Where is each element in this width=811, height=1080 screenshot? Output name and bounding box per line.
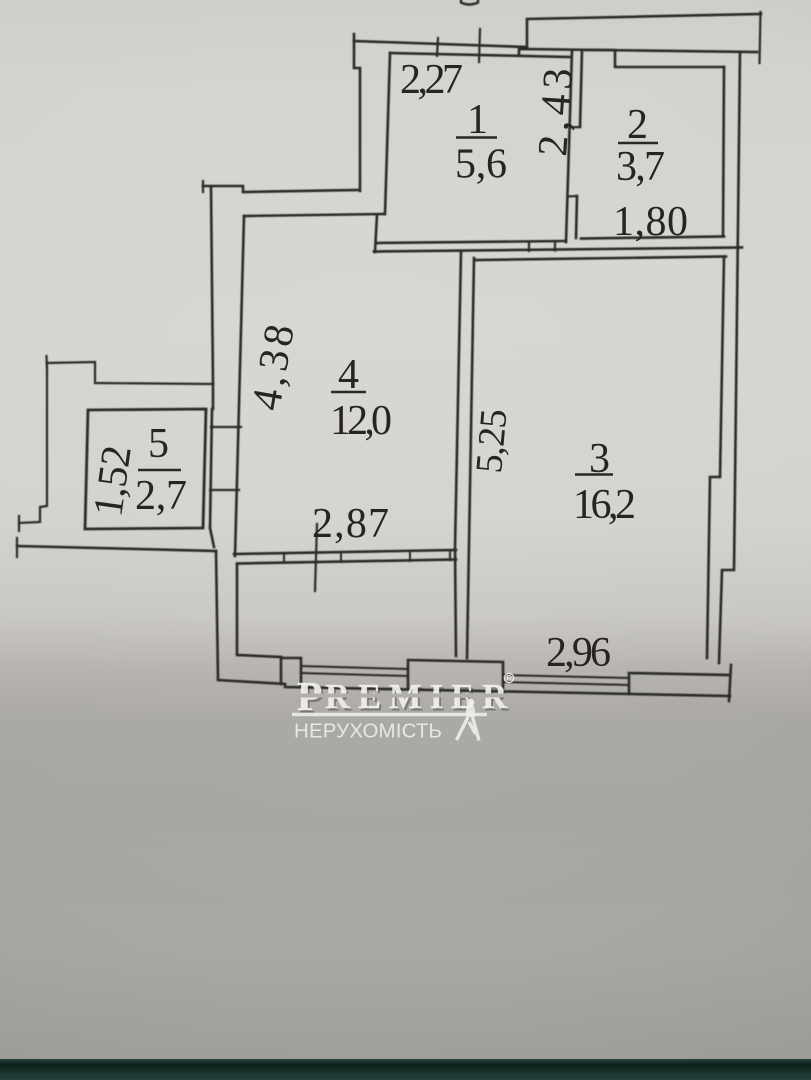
svg-text:2,96: 2,96 xyxy=(546,630,611,676)
svg-text:1,80: 1,80 xyxy=(613,199,688,245)
svg-text:2,87: 2,87 xyxy=(312,501,389,547)
svg-text:12,0: 12,0 xyxy=(330,398,392,444)
svg-text:2,7: 2,7 xyxy=(135,473,187,519)
svg-text:5,6: 5,6 xyxy=(455,142,507,188)
svg-text:2: 2 xyxy=(627,102,648,148)
svg-text:4,38: 4,38 xyxy=(244,321,304,414)
svg-text:2,43: 2,43 xyxy=(530,67,582,158)
svg-text:16,2: 16,2 xyxy=(573,482,636,528)
svg-text:5,25: 5,25 xyxy=(468,407,515,474)
svg-text:2,27: 2,27 xyxy=(400,57,463,103)
svg-text:5: 5 xyxy=(148,421,169,467)
svg-text:1,52: 1,52 xyxy=(85,443,140,520)
svg-text:НЕРУХОМІСТЬ: НЕРУХОМІСТЬ xyxy=(294,720,443,743)
svg-text:P: P xyxy=(297,673,322,719)
svg-text:1: 1 xyxy=(467,97,488,143)
svg-text:3,7: 3,7 xyxy=(616,144,665,190)
svg-text:REMIER: REMIER xyxy=(325,678,513,716)
